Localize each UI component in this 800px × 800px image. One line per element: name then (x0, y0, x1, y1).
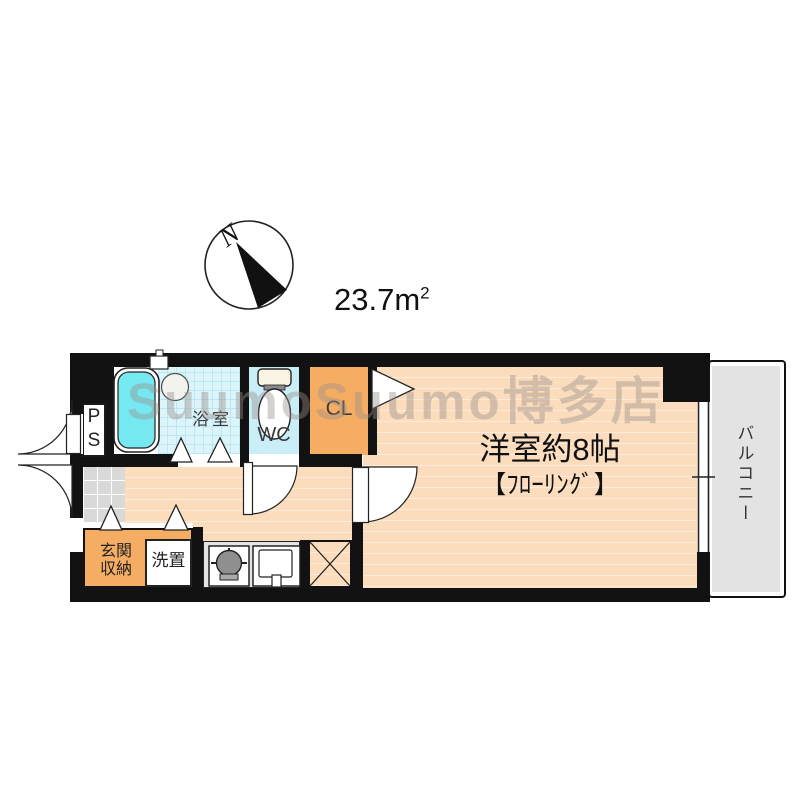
entrance-tile-floor (83, 467, 125, 523)
area-unit: m (394, 282, 420, 317)
area-value: 23.7 (334, 282, 394, 317)
laundry-label: 洗置 (146, 551, 191, 571)
wall-top-right-block (663, 353, 710, 402)
compass-north-label: N (207, 213, 250, 257)
wall-right-lower (697, 552, 710, 602)
area-label: 23.7m2 (334, 281, 430, 318)
wall-left-lower (70, 552, 83, 602)
refrigerator-space-box (308, 540, 352, 588)
wall-room-left (352, 523, 363, 588)
balcony-label: バルコニー (733, 424, 753, 524)
wall-mid-under-closet (299, 454, 362, 467)
wall-laundry-kitchen (193, 527, 203, 588)
kitchen-counter (203, 541, 300, 588)
balcony-window-gap (697, 402, 710, 552)
wall-left-middle (70, 454, 83, 518)
pipe-space-label: P S (82, 405, 106, 453)
watermark: SuumoSuumo博多店 (127, 360, 665, 434)
main-room-floor-note: 【ﾌﾛｰﾘﾝｸﾞ】 (430, 470, 670, 500)
floor-plan-page: N 23.7m2 (0, 0, 800, 800)
main-room-label: 洋室約8帖 (430, 431, 670, 468)
wall-kitchen-right (300, 540, 308, 588)
entrance-storage-label: 玄関 収納 (88, 543, 144, 580)
wall-bottom (70, 588, 710, 602)
area-unit-exponent: 2 (420, 284, 429, 303)
